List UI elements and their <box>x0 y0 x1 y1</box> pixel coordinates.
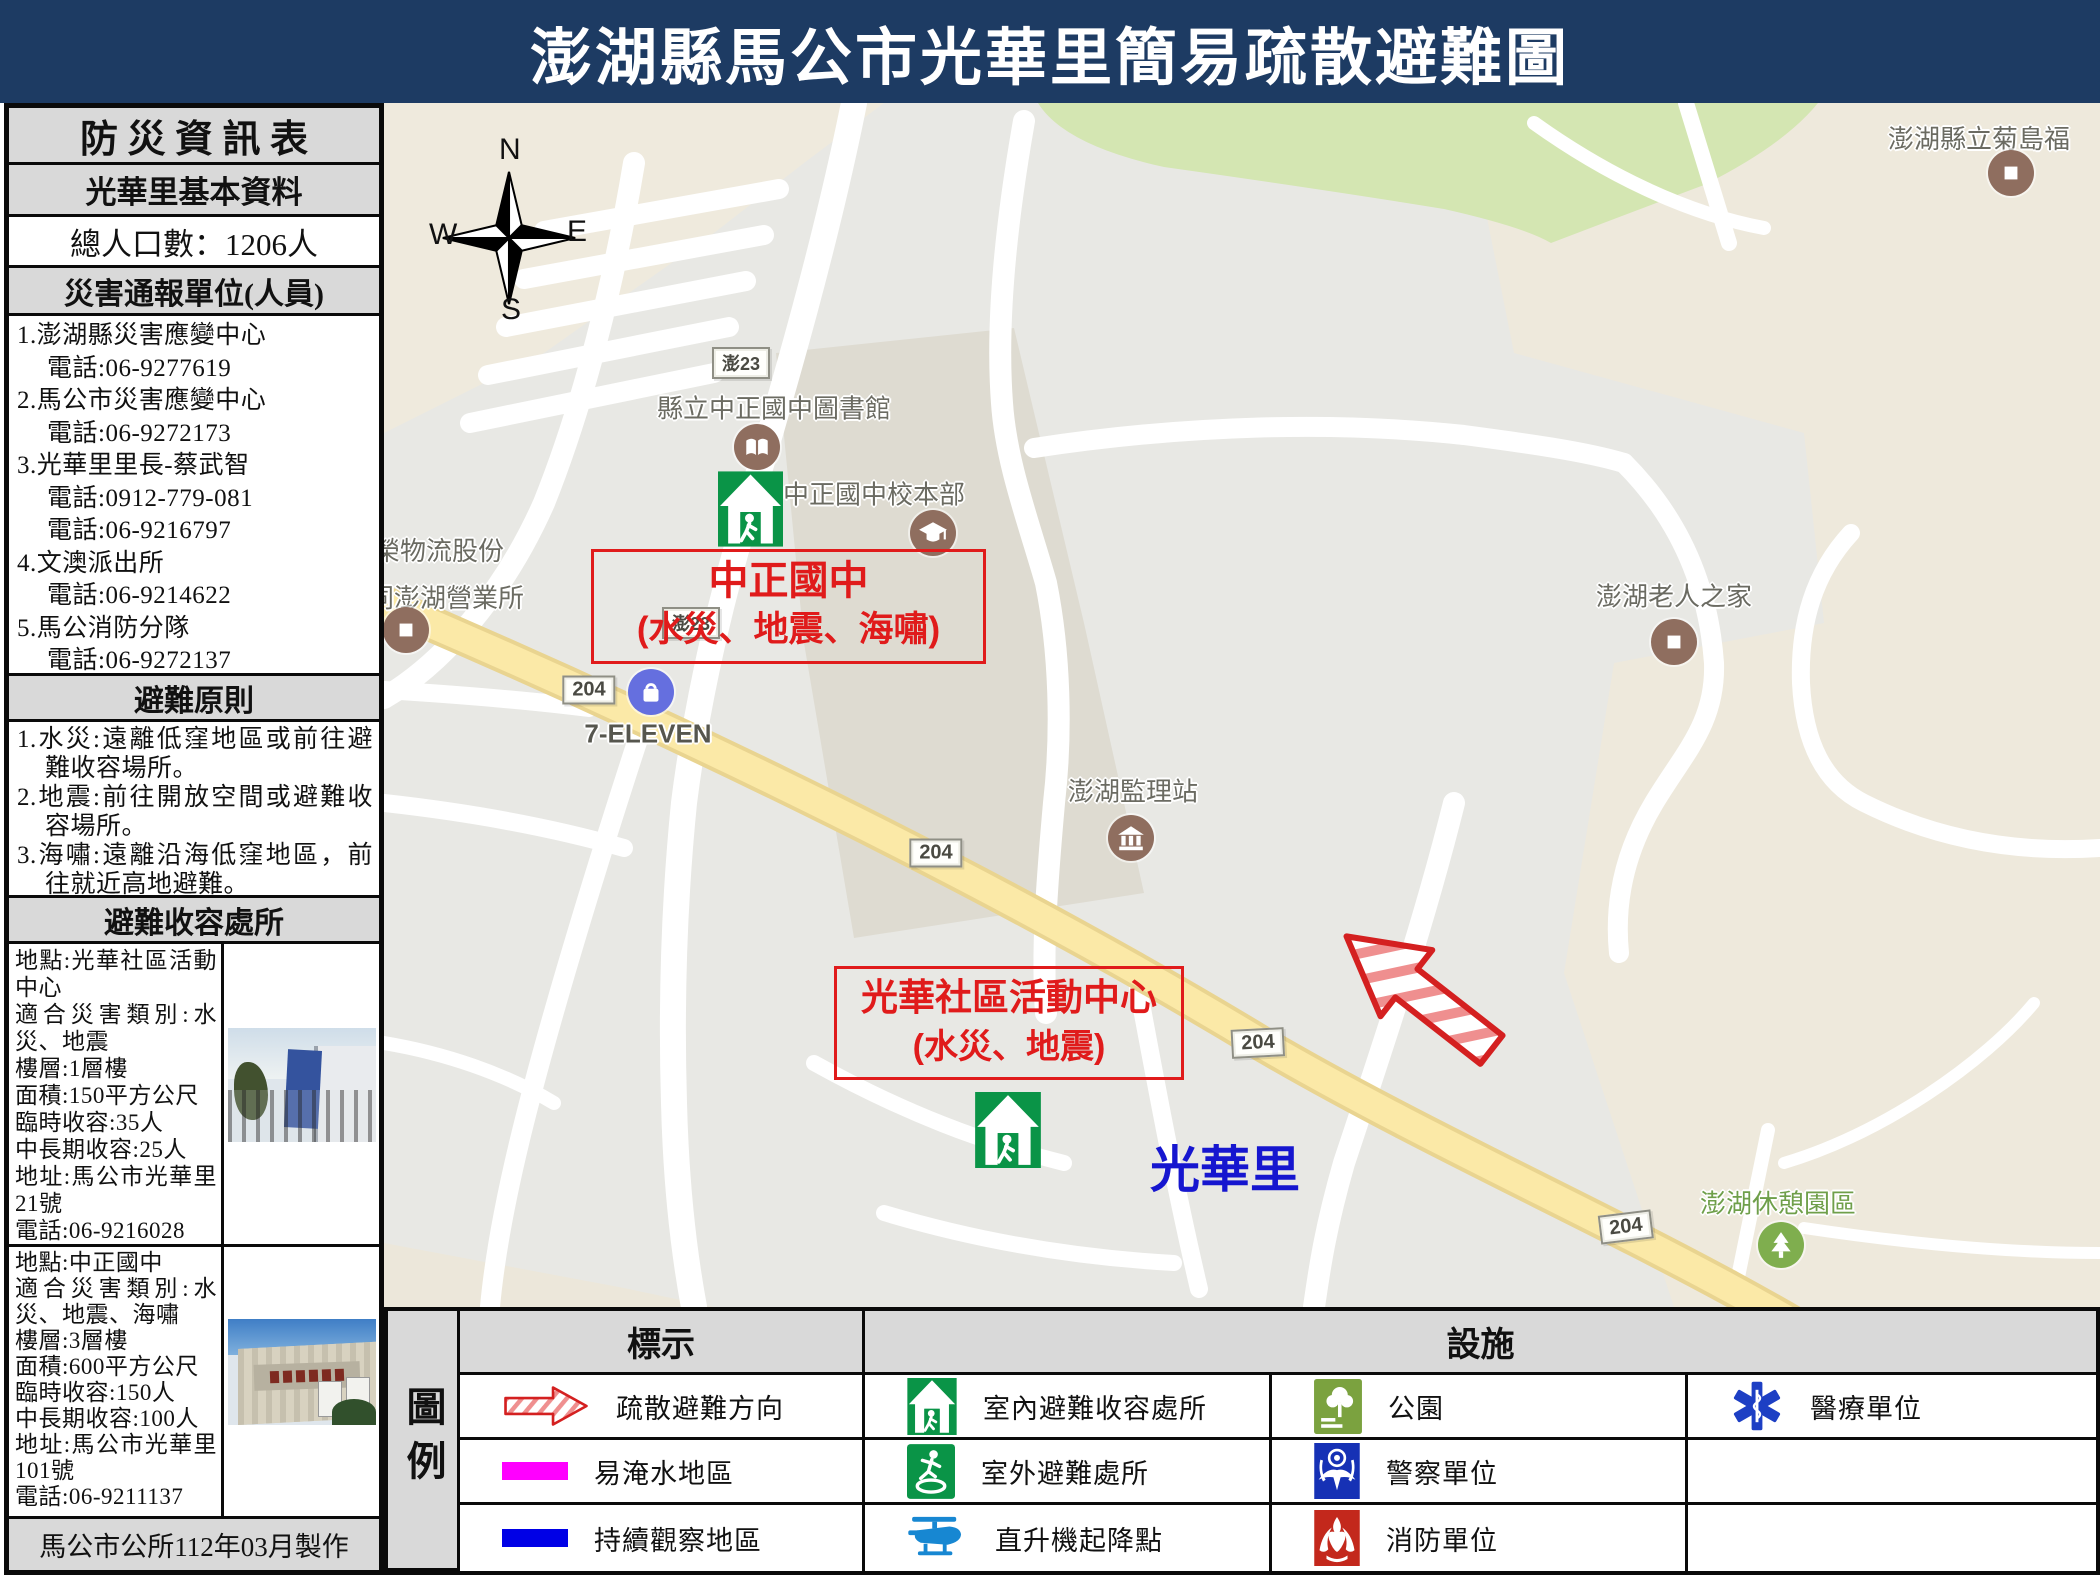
logistics-icon <box>384 607 429 653</box>
shelter-photo-cell <box>224 1247 379 1516</box>
unit-line: 2.馬公市災害應變中心 <box>17 385 375 418</box>
evacuation-map-poster: 澎湖縣馬公市光華里簡易疏散避難圖 防 災 資 訊 表 光華里基本資料 總人口數：… <box>0 0 2100 1575</box>
shelter-record: 地點:光華社區活動中心 適合災害類別:水災、地震 樓層:1層樓 面積:150平方… <box>9 944 379 1247</box>
map-label-rest-park: 澎湖休憩園區 <box>1700 1184 1856 1221</box>
compass-w: W <box>429 218 457 252</box>
school-shelter-callout: 中正國中 (水災、地震、海嘯) <box>591 549 986 664</box>
compass-star <box>439 168 579 308</box>
map-canvas: N W E S 澎23 縣立中正國中圖書館 中正國中校本部 澎23 中正國中 (… <box>384 103 2100 1307</box>
legend-label: 持續觀察地區 <box>594 1519 762 1558</box>
shelter-field: 面積:600平方公尺 <box>15 1354 217 1380</box>
map-label-library: 縣立中正國中圖書館 <box>657 389 891 426</box>
population-value: 總人口數：1206人 <box>9 217 379 268</box>
shelter-field: 地址:馬公市光華里101號 <box>15 1432 217 1484</box>
info-panel: 防 災 資 訊 表 光華里基本資料 總人口數：1206人 災害通報單位(人員) … <box>4 103 384 1575</box>
road-sign-peng23: 澎23 <box>712 347 770 379</box>
shelter-field: 地點:光華社區活動中心 <box>15 947 217 1001</box>
legend-empty-cell <box>1688 1440 2096 1505</box>
welfare-icon <box>1988 150 2034 196</box>
legend-label: 室外避難處所 <box>981 1452 1149 1491</box>
title-bar: 澎湖縣馬公市光華里簡易疏散避難圖 <box>0 0 2100 103</box>
watch-area-chip <box>502 1529 568 1547</box>
shelters-header: 避難收容處所 <box>9 898 379 944</box>
unit-phone: 電話:06-9216797 <box>17 515 375 548</box>
medical-icon <box>1730 1379 1784 1433</box>
shelter-details: 地點:光華社區活動中心 適合災害類別:水災、地震 樓層:1層樓 面積:150平方… <box>9 944 224 1244</box>
shelter-field: 臨時收容:150人 <box>15 1380 217 1406</box>
compass-rose: N W E S <box>409 133 579 313</box>
legend-item-heliport: 直升機起降點 <box>865 1505 1272 1571</box>
legend-item-watch-area: 持續觀察地區 <box>460 1505 865 1571</box>
shelter-field: 適合災害類別:水災、地震 <box>15 1001 217 1055</box>
legend-label: 醫療單位 <box>1810 1387 1922 1426</box>
rest-park-icon <box>1758 1222 1804 1268</box>
facilities-column-header: 設施 <box>865 1311 2096 1375</box>
elder-home-icon <box>1651 619 1697 665</box>
shelter-photo <box>228 1319 376 1425</box>
shelter-field: 電話:06-9211137 <box>15 1484 217 1510</box>
map-label-logistics: 榮物流股份 <box>384 531 504 568</box>
callout-title: 光華社區活動中心 <box>837 973 1181 1023</box>
info-panel-title: 防 災 資 訊 表 <box>9 108 379 165</box>
page-title: 澎湖縣馬公市光華里簡易疏散避難圖 <box>530 7 1570 97</box>
callout-subtitle: (水災、地震、海嘯) <box>594 606 983 654</box>
legend-label: 消防單位 <box>1386 1519 1498 1558</box>
principle-item: 2.地震:前往開放空間或避難收容場所。 <box>17 783 373 841</box>
shelter-field: 地點:中正國中 <box>15 1250 217 1276</box>
village-name-label: 光華里 <box>1150 1130 1300 1202</box>
evacuation-arrow-icon <box>502 1383 590 1429</box>
basic-info-header: 光華里基本資料 <box>9 165 379 217</box>
shelter-field: 地址:馬公市光華里21號 <box>15 1163 217 1217</box>
unit-phone: 電話:06-9277619 <box>17 353 375 386</box>
map-label-seven-eleven: 7-ELEVEN <box>584 719 711 750</box>
shelter-field: 臨時收容:35人 <box>15 1109 217 1136</box>
shelter-field: 適合災害類別:水災、地震、海嘯 <box>15 1276 217 1328</box>
footer-credit: 馬公市公所112年03月製作 <box>9 1519 379 1570</box>
library-icon <box>734 424 780 470</box>
legend-label: 警察單位 <box>1386 1452 1498 1491</box>
legend-item-medical: 醫療單位 <box>1688 1375 2096 1440</box>
legend-item-evacuation-direction: 疏散避難方向 <box>460 1375 865 1440</box>
park-icon <box>1314 1379 1362 1434</box>
unit-line: 4.文澳派出所 <box>17 548 375 581</box>
map-label-welfare: 澎湖縣立菊島福 <box>1888 119 2070 156</box>
legend-label: 易淹水地區 <box>594 1452 734 1491</box>
legend-table: 圖例 標示 設施 疏散避難方向 室內避難收容處所 公園 醫療單位 易淹水地區 室… <box>384 1307 2100 1575</box>
unit-phone: 電話:06-9214622 <box>17 580 375 613</box>
map-label-school: 中正國中校本部 <box>783 475 965 512</box>
shelter-field: 面積:150平方公尺 <box>15 1082 217 1109</box>
shelter-field: 樓層:3層樓 <box>15 1328 217 1354</box>
community-center-callout: 光華社區活動中心 (水災、地震) <box>834 966 1184 1080</box>
principles-header: 避難原則 <box>9 676 379 722</box>
unit-line: 1.澎湖縣災害應變中心 <box>17 320 375 353</box>
road-sign-204: 204 <box>1231 1027 1286 1059</box>
shelter-field: 中長期收容:100人 <box>15 1406 217 1432</box>
legend-title-text: 圖例 <box>400 1386 446 1494</box>
legend-label: 直升機起降點 <box>995 1519 1163 1558</box>
indoor-shelter-icon <box>907 1378 957 1435</box>
callout-subtitle: (水災、地震) <box>837 1023 1181 1071</box>
road-sign-204: 204 <box>909 839 962 868</box>
legend-item-police: 警察單位 <box>1272 1440 1688 1505</box>
shelter-field: 中長期收容:25人 <box>15 1136 217 1163</box>
legend-empty-cell <box>1688 1505 2096 1571</box>
legend-item-fire: 消防單位 <box>1272 1505 1688 1571</box>
marks-column-header: 標示 <box>460 1311 865 1375</box>
map-label-dmv: 澎湖監理站 <box>1068 772 1198 809</box>
heliport-icon <box>907 1515 969 1561</box>
legend-item-park: 公園 <box>1272 1375 1688 1440</box>
legend-label: 室內避難收容處所 <box>983 1387 1207 1426</box>
shelter-details: 地點:中正國中 適合災害類別:水災、地震、海嘯 樓層:3層樓 面積:600平方公… <box>9 1247 224 1516</box>
police-icon <box>1314 1443 1360 1499</box>
fire-icon <box>1314 1510 1360 1566</box>
shelter-field: 樓層:1層樓 <box>15 1055 217 1082</box>
unit-phone: 電話:06-9272137 <box>17 645 375 676</box>
principle-item: 1.水災:遠離低窪地區或前往避難收容場所。 <box>17 725 373 783</box>
shelter-field: 電話:06-9216028 <box>15 1217 217 1244</box>
outdoor-shelter-icon <box>907 1444 955 1499</box>
compass-s: S <box>501 293 521 327</box>
shelter-record: 地點:中正國中 適合災害類別:水災、地震、海嘯 樓層:3層樓 面積:600平方公… <box>9 1247 379 1519</box>
unit-phone: 電話:06-9272173 <box>17 418 375 451</box>
report-units-list: 1.澎湖縣災害應變中心 電話:06-9277619 2.馬公市災害應變中心 電話… <box>9 316 379 676</box>
unit-line: 5.馬公消防分隊 <box>17 613 375 646</box>
principles-list: 1.水災:遠離低窪地區或前往避難收容場所。 2.地震:前往開放空間或避難收容場所… <box>9 722 379 898</box>
shelter-photo <box>228 1028 376 1142</box>
legend-label: 公園 <box>1388 1387 1444 1426</box>
map-label-elder-home: 澎湖老人之家 <box>1596 577 1752 614</box>
indoor-shelter-icon <box>973 1092 1043 1168</box>
callout-title: 中正國中 <box>594 556 983 606</box>
legend-label: 疏散避難方向 <box>616 1387 784 1426</box>
dmv-icon <box>1108 815 1154 861</box>
principle-item: 3.海嘯:遠離沿海低窪地區，前往就近高地避難。 <box>17 841 373 898</box>
seven-eleven-icon <box>628 669 674 715</box>
flood-area-chip <box>502 1462 568 1480</box>
indoor-shelter-icon <box>718 470 783 548</box>
shelter-photo-cell <box>224 944 379 1244</box>
report-units-header: 災害通報單位(人員) <box>9 268 379 316</box>
unit-line: 3.光華里里長-蔡武智 <box>17 450 375 483</box>
legend-item-indoor-shelter: 室內避難收容處所 <box>865 1375 1272 1440</box>
road-sign-204: 204 <box>562 676 615 705</box>
legend-item-outdoor-shelter: 室外避難處所 <box>865 1440 1272 1505</box>
unit-phone: 電話:0912-779-081 <box>17 483 375 516</box>
legend-title: 圖例 <box>388 1311 460 1571</box>
compass-e: E <box>567 215 587 249</box>
legend-item-flood-area: 易淹水地區 <box>460 1440 865 1505</box>
compass-n: N <box>499 133 521 167</box>
